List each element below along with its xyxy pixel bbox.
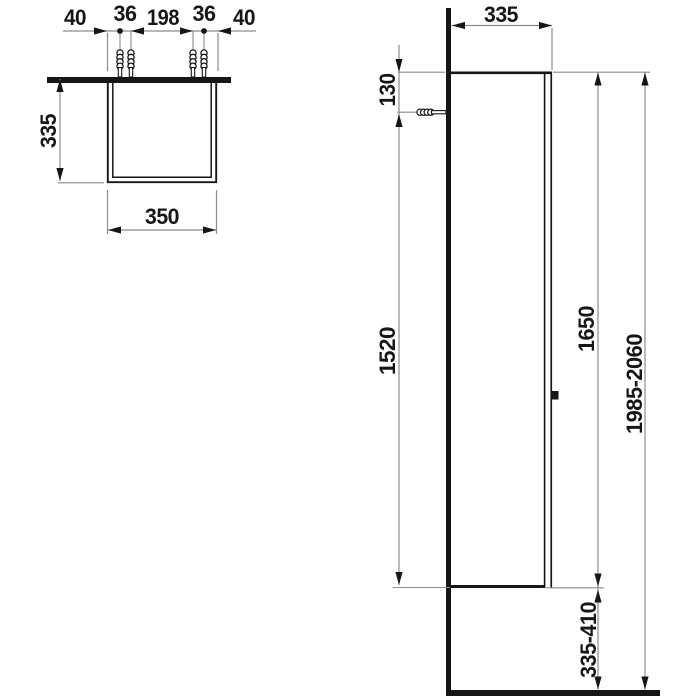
door-front-line — [550, 72, 552, 589]
top-view-fixing-dimension-chain: 40 36 198 36 40 — [63, 1, 256, 71]
side-view-mounting-height-dimension: 1985-2060 — [622, 73, 649, 690]
dim-label-floor-clearance: 335-410 — [576, 602, 601, 678]
top-view: 40 36 198 36 40 — [36, 1, 256, 234]
dim-label-spacing-right-edge: 40 — [233, 5, 255, 30]
floor-line — [446, 690, 660, 696]
side-view-height-dimension-chain: 1650 335-410 — [574, 73, 602, 690]
top-view-depth-dimension: 335 — [36, 79, 104, 183]
wall-plug-icon — [190, 50, 196, 77]
cabinet-carcass-plan — [108, 83, 216, 182]
wall-plug-icon — [201, 50, 207, 77]
wall-line — [446, 8, 451, 696]
wall-plug-icons — [117, 50, 207, 77]
dim-label-top-depth: 335 — [36, 114, 61, 148]
door-handle — [552, 391, 559, 400]
mounting-screw-icon — [397, 109, 446, 115]
dim-label-spacing-pair-right: 36 — [193, 1, 216, 26]
wall-plug-icon — [128, 50, 134, 77]
wall-plug-icon — [117, 50, 123, 77]
dim-label-fixing-from-top: 130 — [375, 73, 400, 106]
dimension-dot-marker — [201, 28, 207, 34]
dim-label-fixing-to-bottom: 1520 — [375, 327, 400, 375]
side-view-depth-dimension: 335 — [452, 2, 553, 70]
technical-drawing-canvas: 40 36 198 36 40 — [0, 0, 700, 700]
cabinet-bottom-line — [451, 585, 545, 588]
top-view-width-dimension: 350 — [108, 190, 217, 234]
dim-label-mounting-height: 1985-2060 — [622, 334, 647, 434]
dim-label-cabinet-height: 1650 — [574, 306, 599, 352]
top-plate-line — [47, 77, 231, 83]
side-view-left-dimension-chain: 130 1520 — [375, 45, 403, 585]
dim-label-side-depth: 335 — [484, 2, 518, 27]
dim-label-spacing-pair-left: 36 — [114, 1, 137, 26]
cabinet-top-line — [451, 72, 552, 75]
dimension-dot-marker — [117, 28, 123, 34]
cabinet-body-front-line — [544, 72, 546, 589]
dim-label-top-width: 350 — [145, 204, 179, 229]
side-view: 335 — [375, 2, 660, 696]
cabinet-dimension-drawing: 40 36 198 36 40 — [0, 0, 700, 700]
tall-cabinet-elevation — [451, 72, 559, 589]
dim-label-spacing-left-edge: 40 — [64, 5, 86, 30]
dim-label-spacing-center: 198 — [147, 5, 179, 30]
